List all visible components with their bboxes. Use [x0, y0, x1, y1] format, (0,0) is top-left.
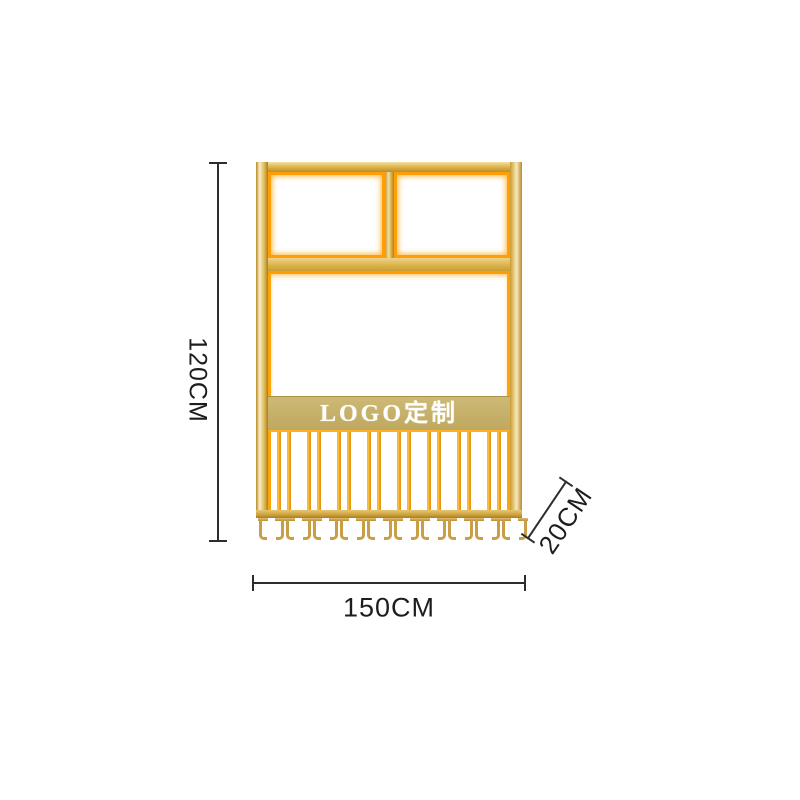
product-image: LOGO定制 120CM 150CM 20CM [0, 0, 800, 800]
rack-top-rail [256, 162, 522, 172]
stemware-hook-icon [258, 518, 268, 542]
rack-middle-shelf-rail [256, 258, 522, 274]
rack-bottom-rail [256, 510, 522, 518]
stemware-hook-icon [302, 518, 312, 542]
stemware-hooks-row [258, 518, 520, 544]
hook-pair [366, 518, 393, 542]
stemware-hook-icon [285, 518, 295, 542]
hook-pair [501, 518, 528, 542]
hook-pair [312, 518, 339, 542]
stemware-hook-icon [501, 518, 511, 542]
stemware-hook-icon [491, 518, 501, 542]
hook-pair [474, 518, 501, 542]
stemware-hook-icon [437, 518, 447, 542]
hook-pair [420, 518, 447, 542]
stemware-hook-icon [366, 518, 376, 542]
hook-pair [393, 518, 420, 542]
stemware-hook-icon [339, 518, 349, 542]
stemware-hook-icon [410, 518, 420, 542]
stemware-hook-icon [383, 518, 393, 542]
logo-band: LOGO定制 [256, 396, 522, 431]
stemware-hook-icon [474, 518, 484, 542]
top-shelf-divider [385, 172, 394, 258]
stemware-hook-icon [464, 518, 474, 542]
hook-pair [339, 518, 366, 542]
rack-middle-open-section [268, 274, 510, 396]
width-dimension-line [252, 582, 526, 584]
height-dimension-label: 120CM [185, 337, 210, 423]
stemware-hook-icon [312, 518, 322, 542]
depth-dimension-label: 20CM [534, 485, 595, 558]
stemware-hook-icon [447, 518, 457, 542]
hook-pair [447, 518, 474, 542]
rack-right-rail [510, 162, 522, 510]
logo-text: LOGO定制 [320, 402, 458, 426]
stemware-hook-icon [329, 518, 339, 542]
rack-left-rail [256, 162, 268, 510]
stemware-hook-icon [420, 518, 430, 542]
stemware-hook-icon [393, 518, 403, 542]
stemware-hook-icon [356, 518, 366, 542]
depth-dimension: 20CM [527, 480, 595, 558]
stemware-hook-icon [275, 518, 285, 542]
hook-pair [285, 518, 312, 542]
rack-top-shelf-section [268, 172, 510, 258]
top-shelf-right-compartment [394, 172, 511, 258]
bottle-slat-section [268, 430, 510, 510]
wine-rack: LOGO定制 [256, 162, 522, 518]
height-dimension-line [217, 162, 219, 542]
hook-pair [258, 518, 285, 542]
top-shelf-left-compartment [268, 172, 385, 258]
width-dimension-label: 150CM [343, 595, 435, 622]
